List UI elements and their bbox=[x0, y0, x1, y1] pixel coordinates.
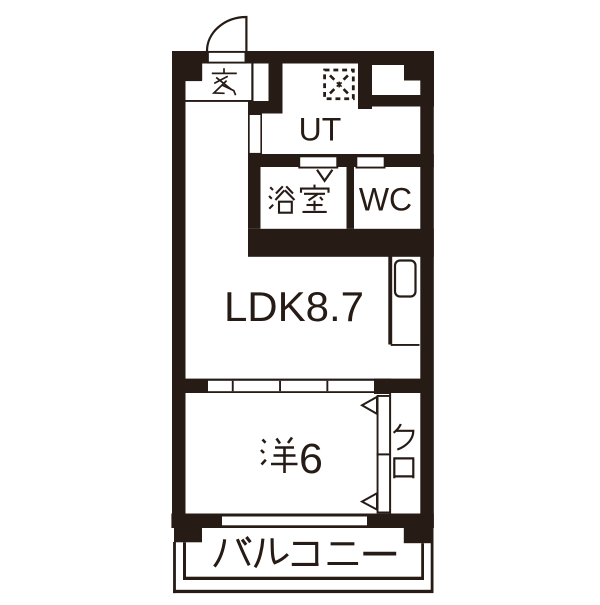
svg-text:WC: WC bbox=[359, 182, 412, 218]
svg-text:LDK8.7: LDK8.7 bbox=[224, 283, 364, 330]
svg-text:UT: UT bbox=[299, 112, 342, 148]
svg-text:6: 6 bbox=[299, 435, 323, 483]
